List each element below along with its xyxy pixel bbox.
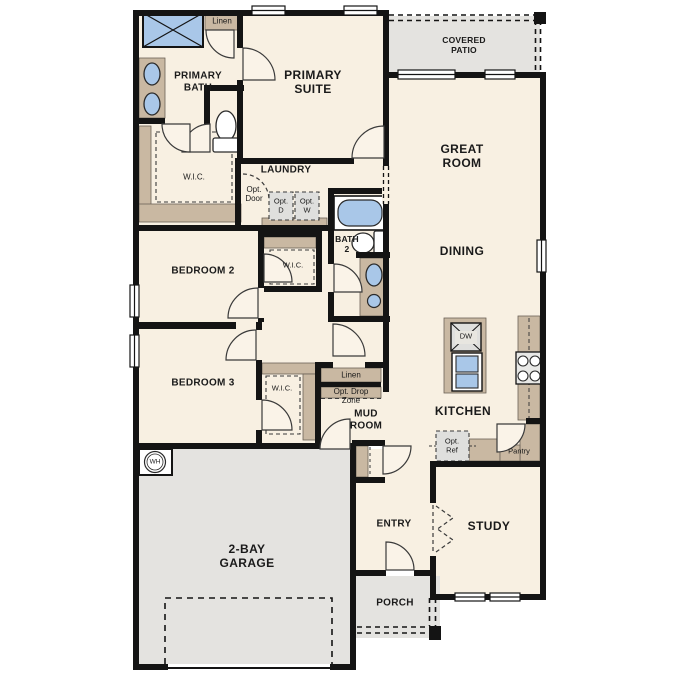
window-suite-2 bbox=[344, 6, 377, 15]
window-study-1 bbox=[455, 593, 485, 601]
opt-washer bbox=[295, 192, 319, 220]
shower bbox=[143, 13, 203, 47]
water-heater bbox=[139, 449, 172, 475]
sink-bath2 bbox=[366, 264, 382, 286]
porch-area bbox=[356, 576, 440, 638]
slider-great-room bbox=[398, 70, 455, 79]
opt-drop-zone-counter bbox=[321, 387, 381, 398]
garage-area bbox=[139, 449, 350, 664]
cased-opening-great-room bbox=[382, 166, 390, 204]
window-great-room-top bbox=[485, 70, 515, 79]
bath2-fixture bbox=[368, 295, 381, 308]
wic-bed3-shelf-east bbox=[303, 374, 317, 440]
floor-plan-svg bbox=[0, 0, 687, 687]
kitchen-counter-ref bbox=[469, 439, 500, 461]
opt-dryer bbox=[269, 192, 293, 220]
window-suite-1 bbox=[252, 6, 285, 15]
window-bed2 bbox=[130, 285, 139, 317]
floor-plan-canvas: COVERED PATIO PRIMARY BATH Linen PRIMARY… bbox=[0, 0, 687, 687]
sink-primary-2 bbox=[144, 93, 160, 115]
wic-bed3-shelf-top bbox=[262, 363, 317, 374]
dishwasher bbox=[451, 323, 481, 351]
window-study-2 bbox=[490, 593, 520, 601]
bathtub bbox=[334, 196, 386, 230]
sink-primary-1 bbox=[144, 63, 160, 85]
linen-closet-mud bbox=[321, 368, 381, 382]
window-bed3 bbox=[130, 335, 139, 367]
primary-wic-shelf-left bbox=[139, 126, 151, 208]
covered-patio-area bbox=[389, 16, 540, 72]
opt-refrigerator bbox=[429, 431, 476, 461]
primary-wic-shelf-bottom bbox=[139, 204, 241, 222]
toilet-bath2 bbox=[352, 231, 386, 255]
window-great-room-right bbox=[537, 240, 546, 272]
wic-bed2-shelf bbox=[264, 237, 316, 248]
entry-closet-shelf bbox=[356, 446, 368, 477]
kitchen-sink bbox=[452, 353, 482, 391]
range-stove bbox=[516, 352, 542, 384]
